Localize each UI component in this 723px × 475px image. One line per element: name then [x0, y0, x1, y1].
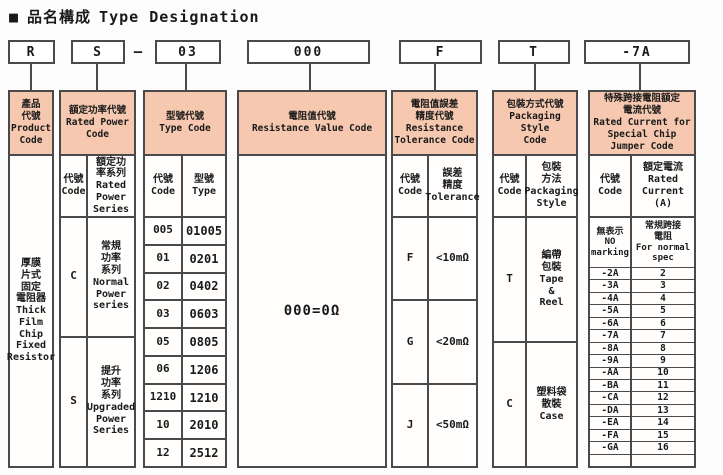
- table-row: 01 0201: [145, 244, 225, 272]
- type-code-cell: 12: [145, 440, 183, 466]
- current-value-cell: 8: [632, 343, 694, 354]
- power-code-cell: S: [61, 338, 88, 466]
- packaging-code-cell: C: [494, 343, 527, 466]
- current-value-cell: 16: [632, 442, 694, 453]
- packaging-subheader-code: 代號 Code: [494, 156, 527, 216]
- current-value-cell: 14: [632, 417, 694, 428]
- resistance-table: 000=0Ω: [237, 154, 387, 468]
- type-value-cell: 2010: [183, 412, 225, 438]
- resistance-header: 電阻值代號 Resistance Value Code: [237, 90, 387, 156]
- table-row: -FA 15: [590, 429, 694, 441]
- current-code-cell: -EA: [590, 417, 632, 428]
- current-subheader: 代號 Code 額定電流 Rated Current (A): [590, 156, 694, 216]
- tolerance-subheader: 代號 Code 誤差 精度 Tolerance: [393, 156, 476, 216]
- table-row: 02 0402: [145, 272, 225, 300]
- type-header: 型號代號 Type Code: [143, 90, 227, 156]
- code-box-tolerance: F: [399, 40, 482, 64]
- table-row: -2A 2: [590, 267, 694, 279]
- table-row: T 編帶 包裝 Tape & Reel: [494, 216, 576, 341]
- column-tolerance: 電阻值誤差 精度代號 Resistance Tolerance Code 代號 …: [391, 90, 478, 468]
- type-code-cell: 03: [145, 301, 183, 327]
- table-row: 1210 1210: [145, 383, 225, 411]
- current-header: 特殊跨接電阻額定 電流代號 Rated Current for Special …: [588, 90, 696, 156]
- tolerance-code-cell: G: [393, 301, 429, 382]
- table-row: J <50mΩ: [393, 383, 476, 466]
- table-row: -CA 12: [590, 391, 694, 403]
- connector-line: [96, 64, 98, 90]
- product-description: 厚膜 片式 固定 電阻器 Thick Film Chip Fixed Resis…: [10, 156, 52, 466]
- table-row: -EA 14: [590, 416, 694, 428]
- type-value-cell: 0603: [183, 301, 225, 327]
- table-row: F <10mΩ: [393, 216, 476, 299]
- packaging-subheader-style: 包裝 方法 Packaging Style: [527, 156, 576, 216]
- current-no-marking-cell: 無表示 NO marking: [590, 218, 632, 267]
- connector-line: [534, 64, 536, 90]
- table-row: S 提升 功率 系列 Upgraded Power Series: [61, 336, 134, 466]
- current-value-cell: 11: [632, 380, 694, 391]
- type-code-cell: 06: [145, 357, 183, 383]
- table-row: -BA 11: [590, 379, 694, 391]
- product-table: 厚膜 片式 固定 電阻器 Thick Film Chip Fixed Resis…: [8, 154, 54, 468]
- type-code-cell: 02: [145, 274, 183, 300]
- type-value-cell: 1210: [183, 385, 225, 411]
- table-row: 05 0805: [145, 327, 225, 355]
- table-row: [590, 454, 694, 466]
- packaging-header: 包裝方式代號 Packaging Style Code: [492, 90, 578, 156]
- power-subheader: 代號 Code 額定功 率系列 Rated Power Series: [61, 156, 134, 216]
- type-table: 代號 Code 型號 Type 005 01005 01 0201 02 040…: [143, 154, 227, 468]
- current-code-cell: -CA: [590, 392, 632, 403]
- page-title-cjk: 品名構成: [27, 6, 91, 27]
- table-row: -9A 9: [590, 354, 694, 366]
- dash-separator: –: [128, 40, 148, 64]
- type-subheader: 代號 Code 型號 Type: [145, 156, 225, 216]
- connector-line: [434, 64, 436, 90]
- packaging-subheader: 代號 Code 包裝 方法 Packaging Style: [494, 156, 576, 216]
- tolerance-value-cell: <20mΩ: [429, 301, 476, 382]
- type-code-cell: 10: [145, 412, 183, 438]
- current-code-cell: -GA: [590, 442, 632, 453]
- table-row: -4A 4: [590, 292, 694, 304]
- type-value-cell: 0402: [183, 274, 225, 300]
- type-value-cell: 0201: [183, 246, 225, 272]
- power-series-cell: 提升 功率 系列 Upgraded Power Series: [88, 338, 134, 466]
- packaging-table: 代號 Code 包裝 方法 Packaging Style T 編帶 包裝 Ta…: [492, 154, 578, 468]
- column-power: 額定功率代號 Rated Power Code 代號 Code 額定功 率系列 …: [59, 90, 136, 468]
- current-value-cell: 15: [632, 430, 694, 441]
- current-code-cell: -5A: [590, 305, 632, 316]
- current-value-cell: 6: [632, 318, 694, 329]
- table-row: -AA 10: [590, 367, 694, 379]
- table-row: 005 01005: [145, 216, 225, 244]
- current-value-cell: 9: [632, 355, 694, 366]
- page-title: ■ 品名構成 Type Designation: [9, 6, 260, 27]
- packaging-style-cell: 塑料袋 散裝 Case: [527, 343, 576, 466]
- current-value-cell: 12: [632, 392, 694, 403]
- packaging-code-cell: T: [494, 218, 527, 341]
- power-subheader-series: 額定功 率系列 Rated Power Series: [88, 156, 134, 216]
- page: { "title": { "marker": "■", "cjk": "品名構成…: [0, 0, 723, 475]
- type-subheader-type: 型號 Type: [183, 156, 225, 216]
- resistance-value: 000=0Ω: [239, 156, 385, 466]
- type-code-cell: 005: [145, 218, 183, 244]
- table-row: -DA 13: [590, 404, 694, 416]
- table-row: 無表示 NO marking 常規跨接 電阻 For normal spec: [590, 216, 694, 267]
- current-value-cell: 2: [632, 268, 694, 279]
- section-marker-icon: ■: [9, 8, 19, 26]
- power-series-cell: 常規 功率 系列 Normal Power series: [88, 218, 134, 336]
- column-packaging: 包裝方式代號 Packaging Style Code 代號 Code 包裝 方…: [492, 90, 578, 468]
- tolerance-code-cell: F: [393, 218, 429, 299]
- power-code-cell: C: [61, 218, 88, 336]
- table-row: -5A 5: [590, 304, 694, 316]
- current-subheader-current: 額定電流 Rated Current (A): [632, 156, 694, 216]
- current-value-cell: 5: [632, 305, 694, 316]
- table-row: -7A 7: [590, 329, 694, 341]
- current-value-cell: 10: [632, 368, 694, 379]
- code-box-product: R: [8, 40, 55, 64]
- tolerance-value-cell: <50mΩ: [429, 385, 476, 466]
- type-code-cell: 01: [145, 246, 183, 272]
- connector-line: [30, 64, 32, 90]
- type-value-cell: 1206: [183, 357, 225, 383]
- table-row: C 塑料袋 散裝 Case: [494, 341, 576, 466]
- tolerance-table: 代號 Code 誤差 精度 Tolerance F <10mΩ G <20mΩ …: [391, 154, 478, 468]
- code-box-current: -7A: [584, 40, 690, 64]
- current-code-cell: -AA: [590, 368, 632, 379]
- current-value-cell: 7: [632, 330, 694, 341]
- tolerance-header: 電阻值誤差 精度代號 Resistance Tolerance Code: [391, 90, 478, 156]
- column-current: 特殊跨接電阻額定 電流代號 Rated Current for Special …: [588, 90, 696, 468]
- page-title-en: Type Designation: [99, 8, 260, 26]
- current-value-cell: 3: [632, 280, 694, 291]
- table-row: C 常規 功率 系列 Normal Power series: [61, 216, 134, 336]
- power-header: 額定功率代號 Rated Power Code: [59, 90, 136, 156]
- current-code-cell: [590, 455, 632, 466]
- table-row: -3A 3: [590, 279, 694, 291]
- current-code-cell: -4A: [590, 293, 632, 304]
- type-subheader-code: 代號 Code: [145, 156, 183, 216]
- type-value-cell: 01005: [183, 218, 225, 244]
- column-resistance: 電阻值代號 Resistance Value Code 000=0Ω: [237, 90, 387, 468]
- type-code-cell: 05: [145, 329, 183, 355]
- current-code-cell: -2A: [590, 268, 632, 279]
- current-table: 代號 Code 額定電流 Rated Current (A) 無表示 NO ma…: [588, 154, 696, 468]
- type-code-cell: 1210: [145, 385, 183, 411]
- tolerance-code-cell: J: [393, 385, 429, 466]
- current-code-cell: -DA: [590, 405, 632, 416]
- current-code-cell: -FA: [590, 430, 632, 441]
- current-code-cell: -3A: [590, 280, 632, 291]
- table-row: G <20mΩ: [393, 299, 476, 382]
- power-subheader-code: 代號 Code: [61, 156, 88, 216]
- current-value-cell: 4: [632, 293, 694, 304]
- current-code-cell: -9A: [590, 355, 632, 366]
- type-value-cell: 0805: [183, 329, 225, 355]
- tolerance-value-cell: <10mΩ: [429, 218, 476, 299]
- current-code-cell: -BA: [590, 380, 632, 391]
- current-value-cell: 13: [632, 405, 694, 416]
- connector-line: [309, 64, 311, 90]
- current-code-cell: -8A: [590, 343, 632, 354]
- table-row: 06 1206: [145, 355, 225, 383]
- current-code-cell: -7A: [590, 330, 632, 341]
- connector-line: [639, 64, 641, 90]
- column-product: 產品 代號 Product Code 厚膜 片式 固定 電阻器 Thick Fi…: [8, 90, 54, 468]
- code-box-packaging: T: [498, 40, 570, 64]
- table-row: 03 0603: [145, 299, 225, 327]
- current-subheader-code: 代號 Code: [590, 156, 632, 216]
- type-value-cell: 2512: [183, 440, 225, 466]
- tolerance-subheader-code: 代號 Code: [393, 156, 429, 216]
- column-type: 型號代號 Type Code 代號 Code 型號 Type 005 01005…: [143, 90, 227, 468]
- packaging-style-cell: 編帶 包裝 Tape & Reel: [527, 218, 576, 341]
- table-row: 10 2010: [145, 410, 225, 438]
- product-header: 產品 代號 Product Code: [8, 90, 54, 156]
- table-row: -GA 16: [590, 441, 694, 453]
- code-box-resistance: 000: [247, 40, 370, 64]
- table-row: 12 2512: [145, 438, 225, 466]
- code-box-power: S: [71, 40, 125, 64]
- code-box-type: 03: [155, 40, 221, 64]
- current-normal-spec-cell: 常規跨接 電阻 For normal spec: [632, 218, 694, 267]
- table-row: -8A 8: [590, 342, 694, 354]
- power-table: 代號 Code 額定功 率系列 Rated Power Series C 常規 …: [59, 154, 136, 468]
- tolerance-subheader-tolerance: 誤差 精度 Tolerance: [429, 156, 476, 216]
- current-value-cell: [632, 455, 694, 466]
- connector-line: [185, 64, 187, 90]
- table-row: -6A 6: [590, 317, 694, 329]
- current-code-cell: -6A: [590, 318, 632, 329]
